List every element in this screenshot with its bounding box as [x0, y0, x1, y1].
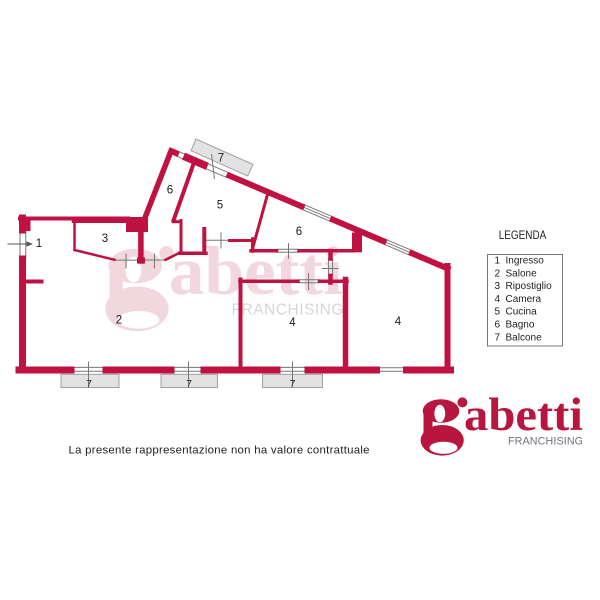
svg-text:Salone: Salone: [506, 268, 538, 279]
svg-text:4: 4: [289, 317, 296, 329]
svg-text:2: 2: [494, 268, 500, 279]
svg-text:1: 1: [494, 256, 500, 267]
svg-text:4: 4: [395, 316, 402, 328]
svg-text:La presente rappresentazione n: La presente rappresentazione non ha valo…: [69, 445, 370, 457]
svg-text:FRANCHISING: FRANCHISING: [508, 435, 583, 447]
svg-text:Ingresso: Ingresso: [506, 256, 545, 267]
svg-text:abetti: abetti: [169, 234, 343, 310]
svg-text:5: 5: [494, 307, 500, 318]
svg-text:Ripostiglio: Ripostiglio: [506, 281, 553, 292]
svg-text:3: 3: [494, 281, 500, 292]
svg-text:Camera: Camera: [506, 294, 542, 305]
svg-text:7: 7: [186, 378, 192, 390]
svg-text:5: 5: [217, 200, 223, 212]
svg-text:abetti: abetti: [464, 389, 583, 441]
svg-text:3: 3: [102, 233, 108, 245]
svg-text:2: 2: [116, 315, 122, 327]
svg-text:Balcone: Balcone: [506, 332, 543, 343]
svg-text:7: 7: [218, 153, 224, 165]
svg-text:6: 6: [167, 185, 173, 197]
svg-text:7: 7: [290, 378, 296, 390]
svg-text:6: 6: [494, 320, 500, 331]
svg-text:FRANCHISING: FRANCHISING: [232, 302, 344, 319]
svg-text:LEGENDA: LEGENDA: [499, 228, 547, 242]
svg-text:6: 6: [296, 226, 302, 238]
svg-text:4: 4: [494, 294, 500, 305]
svg-text:Cucina: Cucina: [506, 307, 538, 318]
svg-text:7: 7: [494, 332, 500, 343]
svg-text:7: 7: [86, 378, 92, 390]
svg-text:Bagno: Bagno: [506, 320, 535, 331]
svg-text:1: 1: [36, 238, 42, 250]
